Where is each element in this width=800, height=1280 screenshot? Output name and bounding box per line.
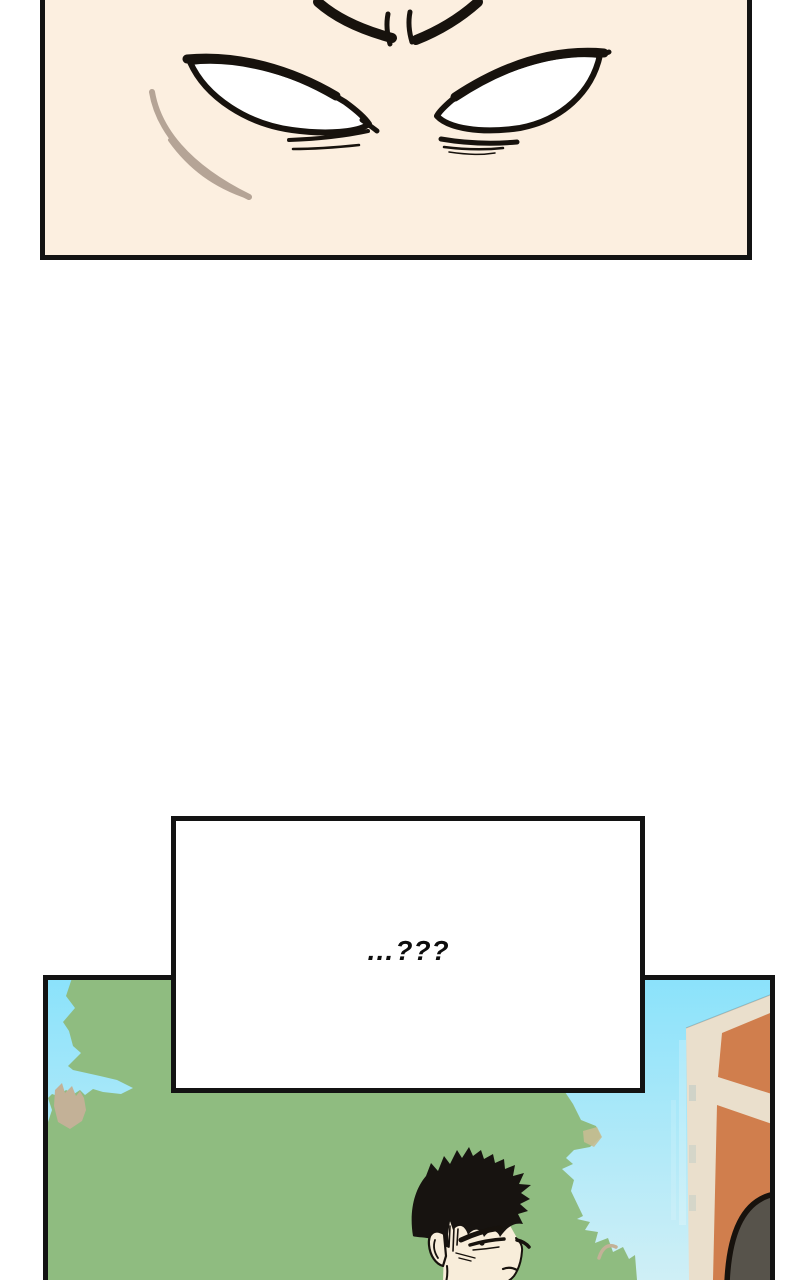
speech-bubble: …??? [171,816,645,1093]
panel-eyes-closeup [40,0,752,262]
window-reflection-mark [689,1085,696,1101]
frown-wrinkle-left [387,14,390,44]
window-reflection-mark-3 [689,1195,696,1211]
sky-highlight-strip-2 [671,1100,676,1220]
window-reflection-mark-2 [689,1145,696,1163]
sky-highlight-strip [679,1040,686,1225]
speech-text: …??? [366,935,449,967]
character-eye-pupil [479,1240,484,1245]
frown-wrinkle-right [409,12,412,42]
comic-page: …??? [0,0,800,1280]
